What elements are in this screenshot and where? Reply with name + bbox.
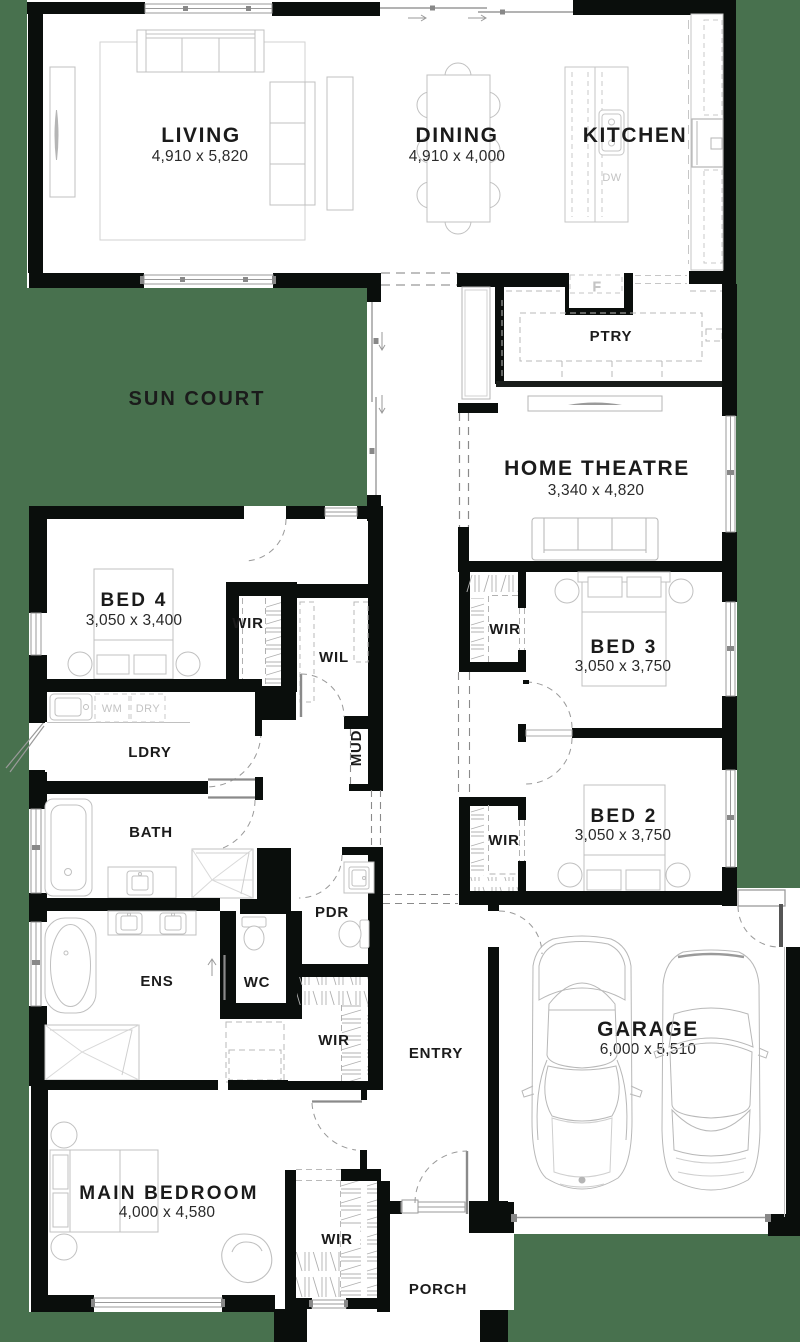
svg-text:3,340 x 4,820: 3,340 x 4,820 xyxy=(548,482,645,499)
svg-text:LDRY: LDRY xyxy=(128,744,171,761)
svg-text:4,910 x 4,000: 4,910 x 4,000 xyxy=(409,148,506,165)
svg-text:WC: WC xyxy=(244,974,271,991)
svg-text:WIR: WIR xyxy=(232,615,264,632)
svg-text:WIR: WIR xyxy=(489,621,521,638)
svg-text:3,050 x 3,750: 3,050 x 3,750 xyxy=(575,827,672,844)
svg-text:3,050 x 3,750: 3,050 x 3,750 xyxy=(575,658,672,675)
svg-text:GARAGE: GARAGE xyxy=(597,1018,699,1041)
svg-text:WM: WM xyxy=(102,703,123,715)
svg-text:WIR: WIR xyxy=(321,1231,353,1248)
svg-text:ENTRY: ENTRY xyxy=(409,1045,463,1062)
svg-text:DINING: DINING xyxy=(415,124,498,147)
svg-text:WIR: WIR xyxy=(318,1032,350,1049)
svg-text:WIL: WIL xyxy=(319,649,349,666)
svg-text:BATH: BATH xyxy=(129,824,173,841)
svg-text:KITCHEN: KITCHEN xyxy=(583,124,688,147)
svg-text:LIVING: LIVING xyxy=(161,124,241,147)
svg-text:4,000 x 4,580: 4,000 x 4,580 xyxy=(119,1204,216,1221)
svg-text:HOME THEATRE: HOME THEATRE xyxy=(504,457,690,480)
svg-text:BED 4: BED 4 xyxy=(101,590,168,611)
svg-text:BED 2: BED 2 xyxy=(591,806,658,827)
svg-text:BED 3: BED 3 xyxy=(591,637,658,658)
svg-text:PDR: PDR xyxy=(315,904,349,921)
svg-text:WIR: WIR xyxy=(488,832,520,849)
svg-text:6,000 x 5,510: 6,000 x 5,510 xyxy=(600,1041,697,1058)
svg-text:3,050 x 3,400: 3,050 x 3,400 xyxy=(86,612,183,629)
svg-text:F: F xyxy=(593,279,601,294)
svg-text:DRY: DRY xyxy=(136,703,161,715)
svg-text:4,910 x 5,820: 4,910 x 5,820 xyxy=(152,148,249,165)
svg-text:PORCH: PORCH xyxy=(409,1281,467,1298)
svg-text:PTRY: PTRY xyxy=(590,328,633,345)
svg-text:DW: DW xyxy=(602,172,621,184)
svg-text:SUN COURT: SUN COURT xyxy=(129,388,266,410)
svg-text:MAIN BEDROOM: MAIN BEDROOM xyxy=(79,1183,258,1204)
svg-text:ENS: ENS xyxy=(140,973,173,990)
